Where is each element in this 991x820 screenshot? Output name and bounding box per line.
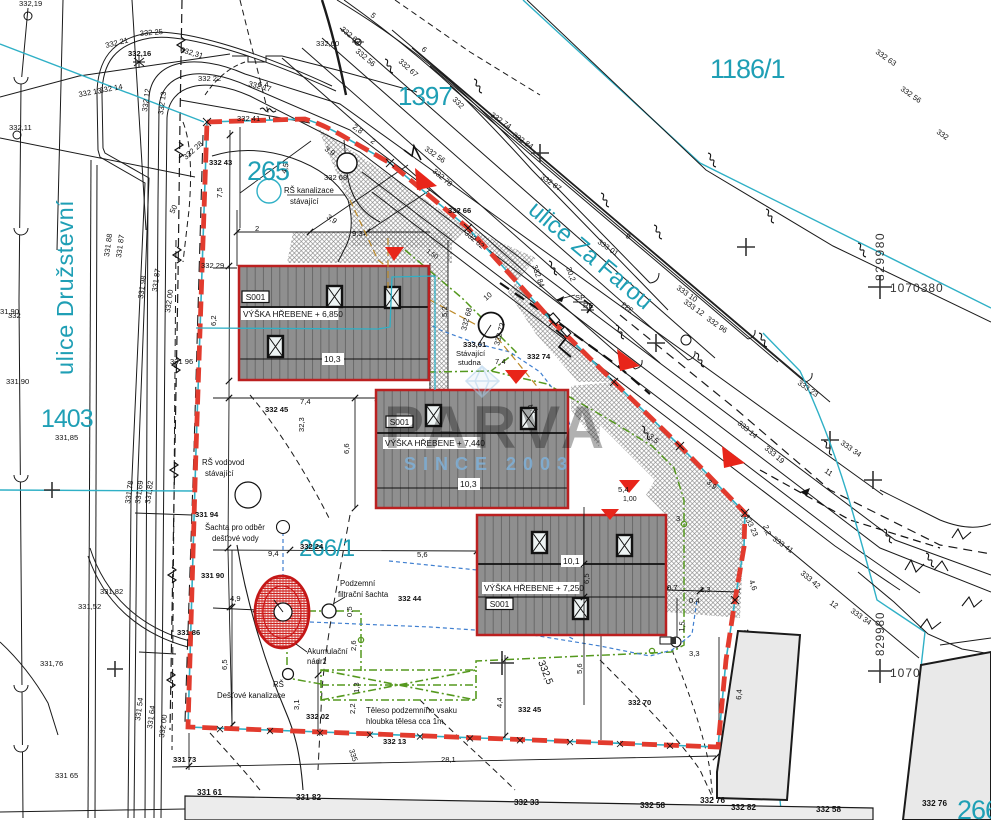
svg-text:266: 266 bbox=[957, 795, 991, 820]
svg-text:5,6: 5,6 bbox=[417, 550, 428, 559]
svg-text:331 90: 331 90 bbox=[201, 571, 224, 580]
svg-text:331 86: 331 86 bbox=[177, 628, 200, 637]
svg-text:9,4: 9,4 bbox=[268, 549, 279, 558]
svg-text:stávající: stávající bbox=[205, 469, 234, 478]
svg-text:RE: RE bbox=[583, 301, 594, 310]
svg-text:1186/1: 1186/1 bbox=[710, 54, 785, 84]
svg-text:332,60: 332,60 bbox=[316, 39, 339, 48]
svg-text:332 41: 332 41 bbox=[237, 114, 260, 123]
svg-text:332,16: 332,16 bbox=[128, 49, 151, 58]
svg-text:4,9: 4,9 bbox=[230, 594, 241, 603]
svg-text:31,90: 31,90 bbox=[0, 307, 19, 316]
svg-text:7,4: 7,4 bbox=[495, 357, 506, 366]
svg-text:7,4: 7,4 bbox=[300, 397, 311, 406]
svg-text:4,4: 4,4 bbox=[495, 697, 504, 708]
svg-text:5,6: 5,6 bbox=[575, 663, 584, 674]
svg-text:VÝŠKA HŘEBENE + 6,850: VÝŠKA HŘEBENE + 6,850 bbox=[243, 309, 343, 319]
svg-text:332 22: 332 22 bbox=[198, 74, 221, 83]
svg-text:Šachta pro odběr: Šachta pro odběr bbox=[205, 523, 265, 532]
svg-text:28,1: 28,1 bbox=[441, 755, 456, 764]
svg-text:331,85: 331,85 bbox=[55, 433, 78, 442]
svg-text:1,5: 1,5 bbox=[677, 621, 687, 632]
svg-text:331,52: 331,52 bbox=[78, 602, 101, 611]
svg-text:1070380: 1070380 bbox=[890, 281, 944, 295]
svg-text:1,00: 1,00 bbox=[623, 496, 637, 503]
svg-text:332 74: 332 74 bbox=[527, 352, 551, 361]
svg-text:332 44: 332 44 bbox=[398, 594, 422, 603]
svg-text:332 45: 332 45 bbox=[265, 405, 289, 414]
svg-text:S001: S001 bbox=[246, 292, 266, 302]
svg-text:332 58: 332 58 bbox=[640, 801, 665, 810]
svg-text:331,82: 331,82 bbox=[100, 587, 123, 596]
svg-text:32,3: 32,3 bbox=[297, 417, 306, 432]
svg-text:332,19: 332,19 bbox=[19, 0, 42, 8]
svg-text:331 96: 331 96 bbox=[170, 357, 193, 366]
svg-text:6,4: 6,4 bbox=[734, 689, 744, 700]
svg-text:1070: 1070 bbox=[890, 666, 921, 680]
svg-text:3,1: 3,1 bbox=[292, 699, 301, 710]
svg-text:Akumulační: Akumulační bbox=[307, 647, 349, 656]
svg-text:332 13: 332 13 bbox=[383, 737, 406, 746]
svg-text:331 73: 331 73 bbox=[173, 755, 196, 764]
svg-text:332,11: 332,11 bbox=[9, 123, 32, 132]
svg-text:10,1: 10,1 bbox=[563, 556, 580, 566]
svg-text:Stávající: Stávající bbox=[456, 349, 486, 358]
svg-text:332 68: 332 68 bbox=[324, 173, 347, 182]
svg-text:331 61: 331 61 bbox=[197, 788, 222, 797]
svg-text:7,5: 7,5 bbox=[215, 187, 224, 198]
svg-text:2: 2 bbox=[255, 224, 259, 233]
svg-text:332 66: 332 66 bbox=[448, 206, 471, 215]
svg-text:nádrž: nádrž bbox=[307, 657, 327, 666]
svg-text:332 24: 332 24 bbox=[300, 542, 324, 551]
svg-text:Dešťové kanalizace: Dešťové kanalizace bbox=[217, 691, 285, 700]
svg-text:Těleso podzemního vsaku: Těleso podzemního vsaku bbox=[366, 706, 457, 715]
svg-text:stávající: stávající bbox=[290, 197, 319, 206]
svg-text:331,90: 331,90 bbox=[6, 377, 29, 386]
svg-text:Podzemní: Podzemní bbox=[340, 579, 376, 588]
svg-text:331 82: 331 82 bbox=[296, 793, 321, 802]
svg-text:S001: S001 bbox=[490, 599, 510, 609]
svg-text:332 29: 332 29 bbox=[201, 261, 224, 270]
svg-text:5,2: 5,2 bbox=[440, 306, 449, 317]
svg-text:RŠ kanalizace: RŠ kanalizace bbox=[284, 186, 334, 195]
svg-text:6,6: 6,6 bbox=[342, 443, 351, 454]
svg-text:VÝŠKA HŘEBENE + 7,250: VÝŠKA HŘEBENE + 7,250 bbox=[484, 583, 584, 593]
svg-text:332 33: 332 33 bbox=[514, 798, 539, 807]
svg-text:3: 3 bbox=[676, 514, 680, 523]
svg-text:filtrační šachta: filtrační šachta bbox=[338, 590, 389, 599]
svg-text:332 43: 332 43 bbox=[209, 158, 232, 167]
svg-text:6,5: 6,5 bbox=[220, 659, 229, 670]
svg-text:0,4: 0,4 bbox=[689, 596, 700, 605]
svg-text:SINCE 2003: SINCE 2003 bbox=[404, 454, 574, 474]
svg-text:332 45: 332 45 bbox=[518, 705, 542, 714]
svg-text:332 82: 332 82 bbox=[731, 803, 756, 812]
svg-text:PARVA: PARVA bbox=[384, 394, 609, 461]
svg-text:10,3: 10,3 bbox=[460, 479, 477, 489]
svg-text:1403: 1403 bbox=[41, 405, 93, 433]
svg-text:333,01: 333,01 bbox=[463, 340, 487, 349]
svg-text:10,3: 10,3 bbox=[324, 354, 341, 364]
svg-text:332 70: 332 70 bbox=[628, 698, 651, 707]
svg-text:331,76: 331,76 bbox=[40, 659, 63, 668]
svg-text:hloubka tělesa cca 1m: hloubka tělesa cca 1m bbox=[366, 717, 444, 726]
svg-text:829980: 829980 bbox=[875, 612, 887, 656]
svg-text:332 02: 332 02 bbox=[306, 712, 329, 721]
svg-text:9,3: 9,3 bbox=[352, 229, 363, 238]
svg-text:dešťové vody: dešťové vody bbox=[212, 534, 259, 543]
svg-text:829980: 829980 bbox=[873, 232, 887, 281]
svg-text:332 76: 332 76 bbox=[922, 799, 947, 808]
svg-text:332 76: 332 76 bbox=[700, 796, 725, 805]
svg-text:6,2: 6,2 bbox=[209, 315, 218, 326]
svg-text:6,5: 6,5 bbox=[582, 573, 591, 584]
svg-text:RŠ: RŠ bbox=[273, 680, 284, 689]
svg-text:0,7: 0,7 bbox=[667, 583, 678, 592]
svg-text:ulice Družstevní: ulice Družstevní bbox=[52, 200, 78, 375]
svg-text:1,3: 1,3 bbox=[352, 682, 361, 693]
svg-text:2,6: 2,6 bbox=[349, 640, 358, 651]
svg-text:studna: studna bbox=[458, 358, 482, 367]
svg-text:5,4: 5,4 bbox=[618, 485, 629, 494]
svg-text:1397: 1397 bbox=[398, 81, 452, 111]
svg-text:2,2: 2,2 bbox=[348, 703, 357, 714]
svg-text:331 94: 331 94 bbox=[195, 510, 219, 519]
svg-text:3,3: 3,3 bbox=[689, 649, 700, 658]
svg-text:332 58: 332 58 bbox=[816, 805, 841, 814]
svg-text:RŠ vodovod: RŠ vodovod bbox=[202, 458, 244, 467]
svg-text:0,5: 0,5 bbox=[345, 606, 354, 617]
svg-text:331 65: 331 65 bbox=[55, 771, 78, 780]
svg-text:2,3: 2,3 bbox=[700, 585, 711, 594]
